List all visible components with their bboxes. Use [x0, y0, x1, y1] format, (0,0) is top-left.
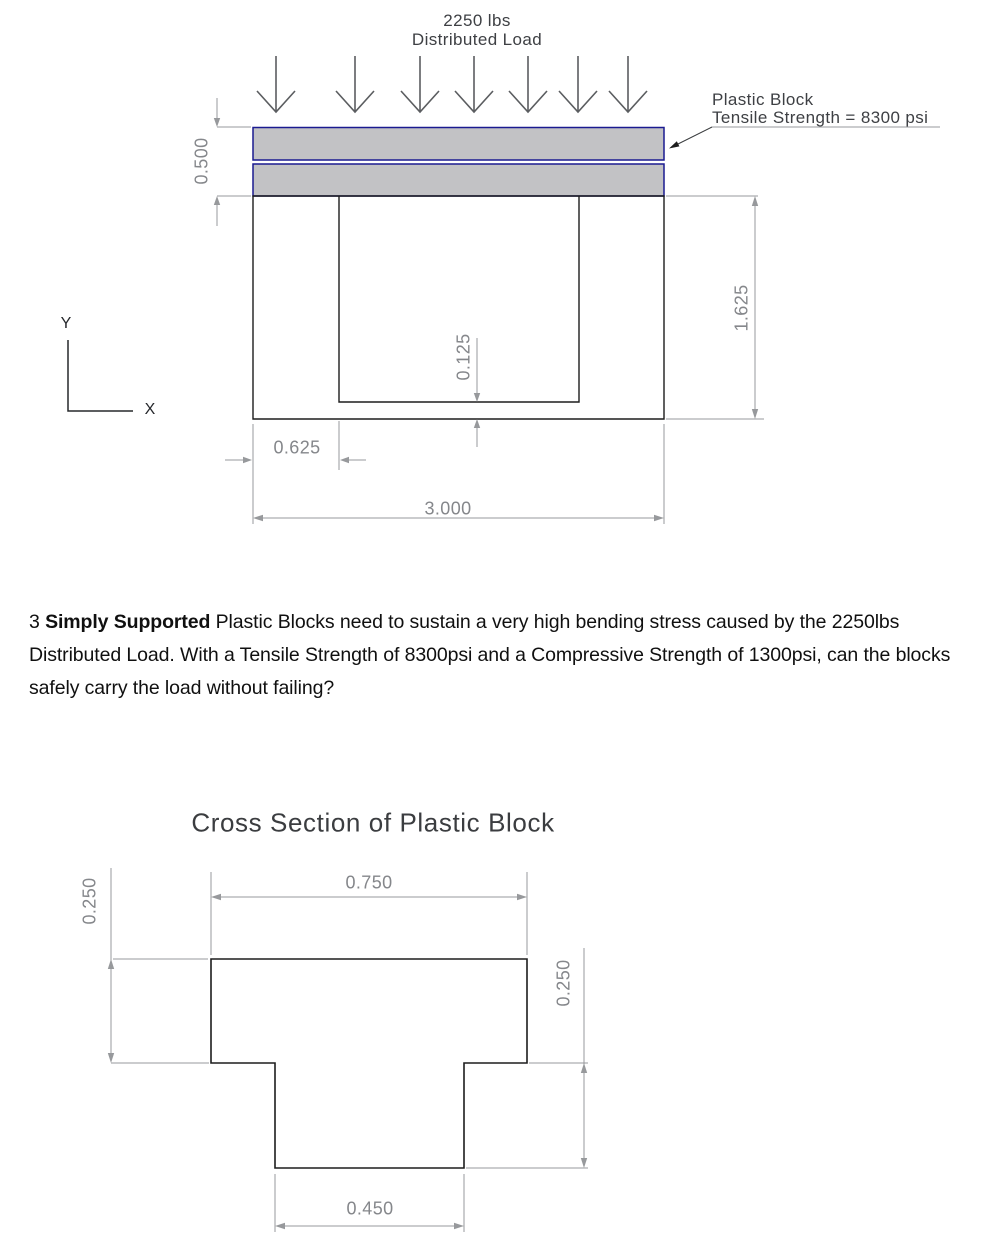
cross-section-dimension-arrowheads: [108, 894, 587, 1229]
load-label-line2: Distributed Load: [412, 30, 542, 50]
plastic-blocks-side-view: [253, 128, 664, 197]
problem-statement: 3 Simply Supported Plastic Blocks need t…: [29, 606, 973, 705]
dim-floor-thickness: 0.125: [454, 333, 475, 380]
t-cross-section-outline: [211, 959, 527, 1168]
dim-flange-width: 0.750: [345, 873, 392, 894]
dim-support-height: 1.625: [732, 284, 753, 331]
dim-total-width: 3.000: [424, 499, 471, 520]
block-label-leader: [669, 127, 712, 149]
xy-axis-icon: [68, 340, 133, 411]
worksheet-page: 2250 lbs Distributed Load Plastic Block …: [0, 0, 998, 1259]
x-axis-label: X: [145, 401, 156, 419]
dim-stem-width: 0.450: [346, 1199, 393, 1220]
dim-block-stack-height: 0.500: [192, 137, 213, 184]
cross-section-dimension-lines: [111, 868, 588, 1232]
load-label-line1: 2250 lbs: [443, 11, 510, 31]
dim-flange-thickness: 0.250: [80, 877, 101, 924]
dim-wall-width: 0.625: [273, 438, 320, 459]
block-label-line1: Plastic Block: [712, 90, 814, 110]
y-axis-label: Y: [61, 315, 72, 333]
cross-section-title: Cross Section of Plastic Block: [191, 808, 554, 839]
problem-bold-phrase: Simply Supported: [45, 611, 210, 633]
dim-stem-height: 0.250: [554, 959, 575, 1006]
support-structure-outline: [253, 196, 664, 419]
block-label-line2: Tensile Strength = 8300 psi: [712, 108, 928, 128]
distributed-load-arrows-icon: [257, 56, 647, 112]
problem-prefix: 3: [29, 611, 45, 633]
